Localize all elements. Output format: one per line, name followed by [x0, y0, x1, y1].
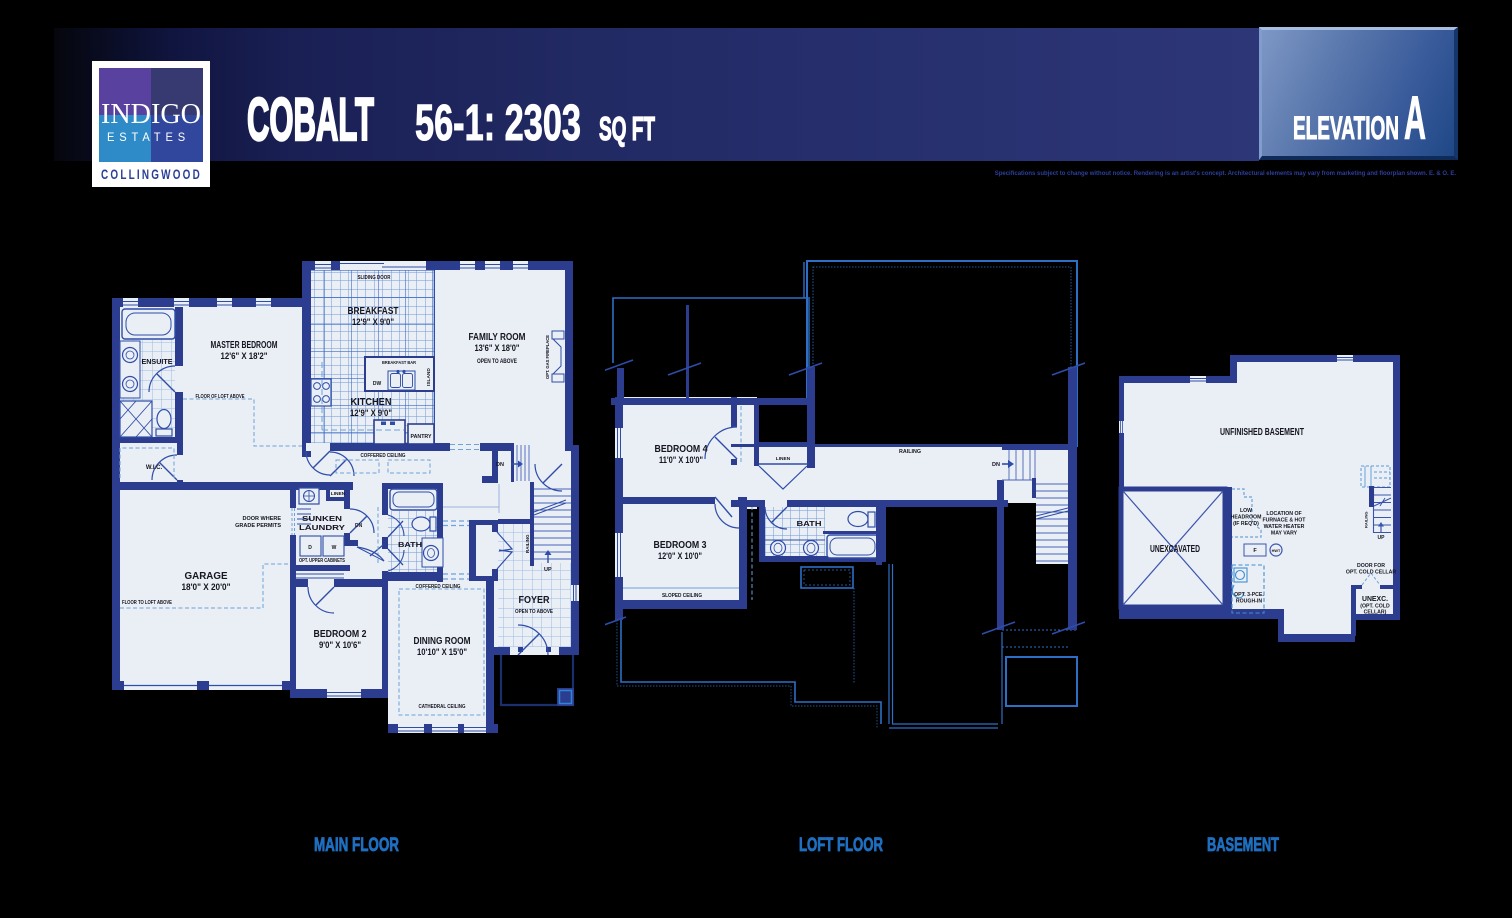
svg-text:COLLINGWOOD: COLLINGWOOD: [101, 167, 202, 182]
svg-text:ISLAND: ISLAND: [426, 368, 432, 386]
svg-text:OPEN TO ABOVE: OPEN TO ABOVE: [477, 359, 517, 365]
svg-text:CATHEDRAL CEILING: CATHEDRAL CEILING: [419, 704, 466, 710]
svg-text:MAY VARY: MAY VARY: [1271, 531, 1298, 537]
svg-text:12'9" X 9'0": 12'9" X 9'0": [352, 317, 394, 327]
svg-text:12'9" X 9'0": 12'9" X 9'0": [350, 408, 392, 418]
svg-text:BASEMENT: BASEMENT: [1207, 835, 1279, 856]
svg-text:FLOOR OF LOFT ABOVE: FLOOR OF LOFT ABOVE: [196, 394, 245, 400]
svg-text:WATER HEATER: WATER HEATER: [1264, 524, 1305, 530]
svg-text:UP: UP: [544, 567, 552, 573]
svg-text:LOW: LOW: [1240, 508, 1252, 514]
svg-text:W: W: [332, 545, 337, 551]
svg-text:OPT. COLD CELLAR: OPT. COLD CELLAR: [1346, 570, 1396, 576]
svg-text:INDIGO: INDIGO: [101, 98, 201, 130]
svg-text:ESTATES: ESTATES: [107, 132, 190, 144]
svg-text:SLOPED CEILING: SLOPED CEILING: [662, 593, 702, 599]
svg-text:DINING ROOM: DINING ROOM: [414, 635, 471, 647]
svg-text:RAILING: RAILING: [525, 534, 530, 553]
svg-text:OPT. GAS FIREPLACE: OPT. GAS FIREPLACE: [545, 334, 551, 379]
svg-text:18'0" X 20'0": 18'0" X 20'0": [182, 582, 231, 592]
svg-text:A: A: [1404, 84, 1426, 152]
svg-text:BREAKFAST BAR: BREAKFAST BAR: [382, 360, 416, 366]
svg-text:DOOR WHERE: DOOR WHERE: [243, 516, 282, 522]
svg-text:MAIN FLOOR: MAIN FLOOR: [314, 835, 399, 856]
svg-text:DW: DW: [373, 381, 382, 387]
svg-text:SQ FT: SQ FT: [599, 110, 655, 147]
svg-text:RAILING: RAILING: [899, 449, 921, 455]
svg-text:KITCHEN: KITCHEN: [351, 396, 392, 408]
svg-text:FAMILY ROOM: FAMILY ROOM: [469, 331, 526, 343]
svg-text:ENSUITE: ENSUITE: [142, 357, 173, 366]
svg-text:56-1: 2303: 56-1: 2303: [415, 94, 581, 151]
svg-text:12'0" X 10'0": 12'0" X 10'0": [658, 551, 702, 561]
svg-text:LOCATION OF: LOCATION OF: [1266, 511, 1301, 517]
svg-text:BEDROOM 3: BEDROOM 3: [654, 539, 707, 551]
svg-text:DN: DN: [355, 523, 363, 529]
svg-text:ELEVATION: ELEVATION: [1293, 110, 1399, 146]
svg-text:BATH: BATH: [398, 540, 422, 549]
svg-text:Specifications subject to chan: Specifications subject to change without…: [995, 171, 1457, 177]
svg-text:W.I.C.: W.I.C.: [146, 465, 163, 471]
svg-text:UP: UP: [1378, 535, 1386, 541]
svg-text:RAILING: RAILING: [1364, 512, 1369, 528]
svg-text:D: D: [308, 545, 312, 551]
svg-text:DN: DN: [496, 462, 504, 468]
svg-text:OPEN TO ABOVE: OPEN TO ABOVE: [515, 609, 553, 615]
svg-text:FOYER: FOYER: [519, 594, 550, 606]
svg-text:DOOR FOR: DOOR FOR: [1357, 563, 1385, 569]
svg-text:OPT. 3-PCE.: OPT. 3-PCE.: [1234, 592, 1264, 598]
svg-text:LINEN: LINEN: [776, 456, 791, 462]
svg-text:12'6" X 18'2": 12'6" X 18'2": [221, 351, 268, 361]
svg-text:ROUGH-IN: ROUGH-IN: [1236, 599, 1262, 605]
svg-text:FURNACE & HOT: FURNACE & HOT: [1263, 518, 1307, 524]
svg-text:UNFINISHED BASEMENT: UNFINISHED BASEMENT: [1220, 427, 1304, 438]
svg-text:LAUNDRY: LAUNDRY: [299, 523, 345, 532]
svg-text:MASTER BEDROOM: MASTER BEDROOM: [211, 339, 278, 351]
svg-text:GRADE PERMITS: GRADE PERMITS: [235, 523, 281, 529]
svg-text:SUNKEN: SUNKEN: [302, 514, 342, 523]
svg-text:SLIDING DOOR: SLIDING DOOR: [358, 275, 391, 281]
svg-text:PANTRY: PANTRY: [411, 434, 433, 440]
svg-text:LOFT FLOOR: LOFT FLOOR: [799, 835, 883, 856]
svg-text:CELLAR): CELLAR): [1364, 610, 1387, 616]
svg-text:FLOOR TO LOFT ABOVE: FLOOR TO LOFT ABOVE: [122, 600, 172, 606]
svg-text:10'10" X 15'0": 10'10" X 15'0": [417, 647, 467, 657]
svg-text:GARAGE: GARAGE: [185, 570, 228, 582]
svg-text:UNEXC.: UNEXC.: [1362, 594, 1388, 603]
svg-text:BEDROOM 4: BEDROOM 4: [655, 443, 708, 455]
svg-text:OPT. UPPER CABINETS: OPT. UPPER CABINETS: [299, 558, 346, 564]
svg-text:HEADROOM: HEADROOM: [1231, 515, 1262, 521]
svg-text:9'0" X 10'6": 9'0" X 10'6": [319, 640, 361, 650]
svg-text:COBALT: COBALT: [247, 86, 374, 153]
svg-text:HWT: HWT: [1272, 549, 1281, 553]
svg-text:LINEN: LINEN: [331, 491, 346, 497]
svg-text:DN: DN: [992, 462, 1000, 468]
svg-text:(IF REQ'D): (IF REQ'D): [1233, 521, 1259, 527]
svg-text:COFFERED CEILING: COFFERED CEILING: [361, 453, 406, 459]
svg-text:COFFERED CEILING: COFFERED CEILING: [416, 584, 461, 590]
svg-text:BEDROOM 2: BEDROOM 2: [314, 628, 367, 640]
svg-text:UNEXCAVATED: UNEXCAVATED: [1150, 544, 1200, 555]
svg-text:13'6" X 18'0": 13'6" X 18'0": [475, 343, 520, 353]
svg-text:11'0" X 10'0": 11'0" X 10'0": [659, 455, 703, 465]
svg-text:BREAKFAST: BREAKFAST: [348, 305, 399, 317]
svg-text:BATH: BATH: [797, 519, 822, 528]
